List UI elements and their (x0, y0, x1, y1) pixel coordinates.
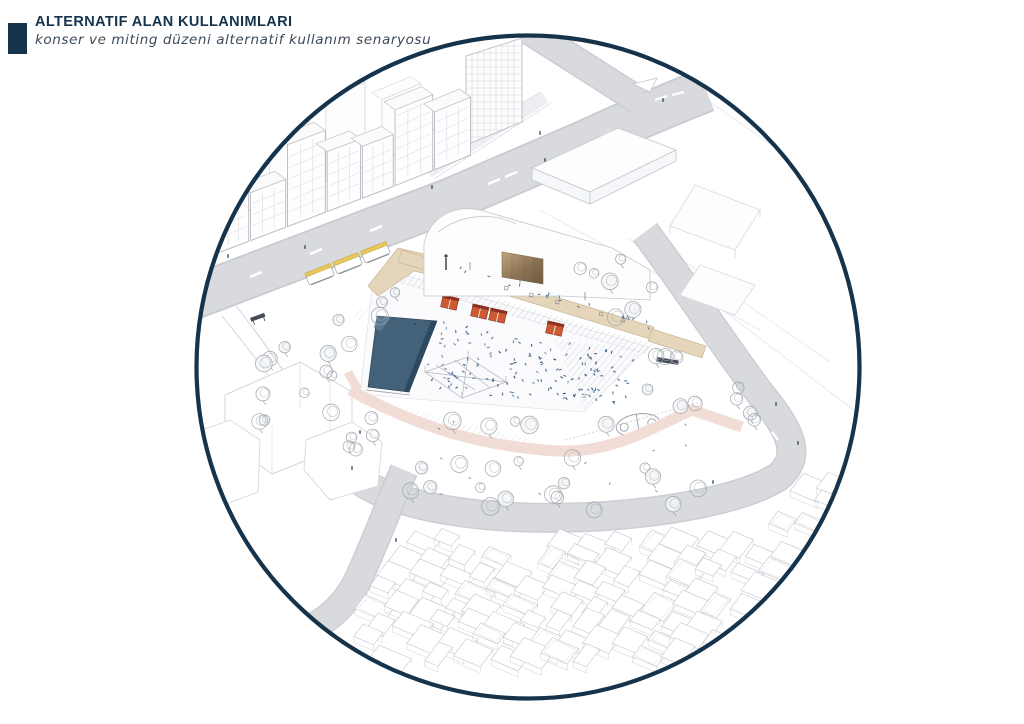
title-block: ALTERNATIF ALAN KULLANIMLARI konser ve m… (8, 14, 431, 54)
axonometric-site-drawing (0, 0, 1024, 724)
page-subtitle: konser ve miting düzeni alternatif kulla… (35, 32, 431, 48)
page-title: ALTERNATIF ALAN KULLANIMLARI (35, 14, 431, 30)
title-accent-square (8, 23, 27, 54)
drawing-area (0, 0, 1024, 724)
